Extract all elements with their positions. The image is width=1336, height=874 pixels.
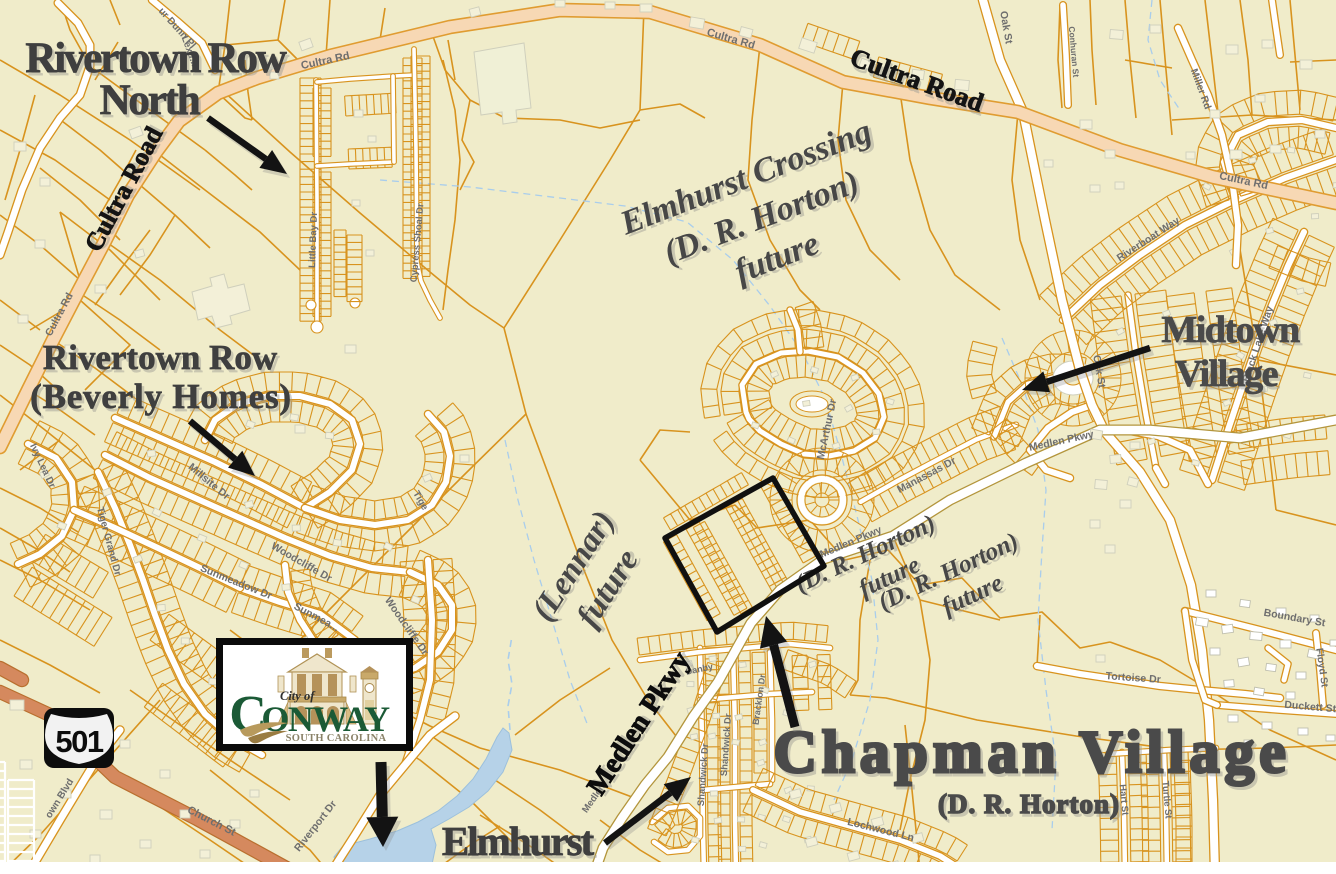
svg-text:501: 501 (55, 724, 103, 759)
svg-text:Little Bay Dr: Little Bay Dr (307, 211, 320, 268)
svg-text:Rivertown Row: Rivertown Row (43, 338, 278, 377)
svg-text:Village: Village (1175, 353, 1278, 395)
svg-text:SOUTH CAROLINA: SOUTH CAROLINA (286, 733, 387, 744)
svg-text:(Beverly Homes): (Beverly Homes) (30, 377, 292, 416)
svg-text:Chapman Village: Chapman Village (773, 719, 1290, 785)
svg-text:North: North (100, 77, 201, 124)
svg-text:City of: City of (280, 689, 316, 703)
svg-text:Midtown: Midtown (1161, 309, 1300, 351)
svg-text:Elmhurst: Elmhurst (442, 818, 595, 864)
svg-text:Rivertown Row: Rivertown Row (25, 35, 286, 82)
svg-text:(D. R. Horton): (D. R. Horton) (938, 789, 1120, 819)
